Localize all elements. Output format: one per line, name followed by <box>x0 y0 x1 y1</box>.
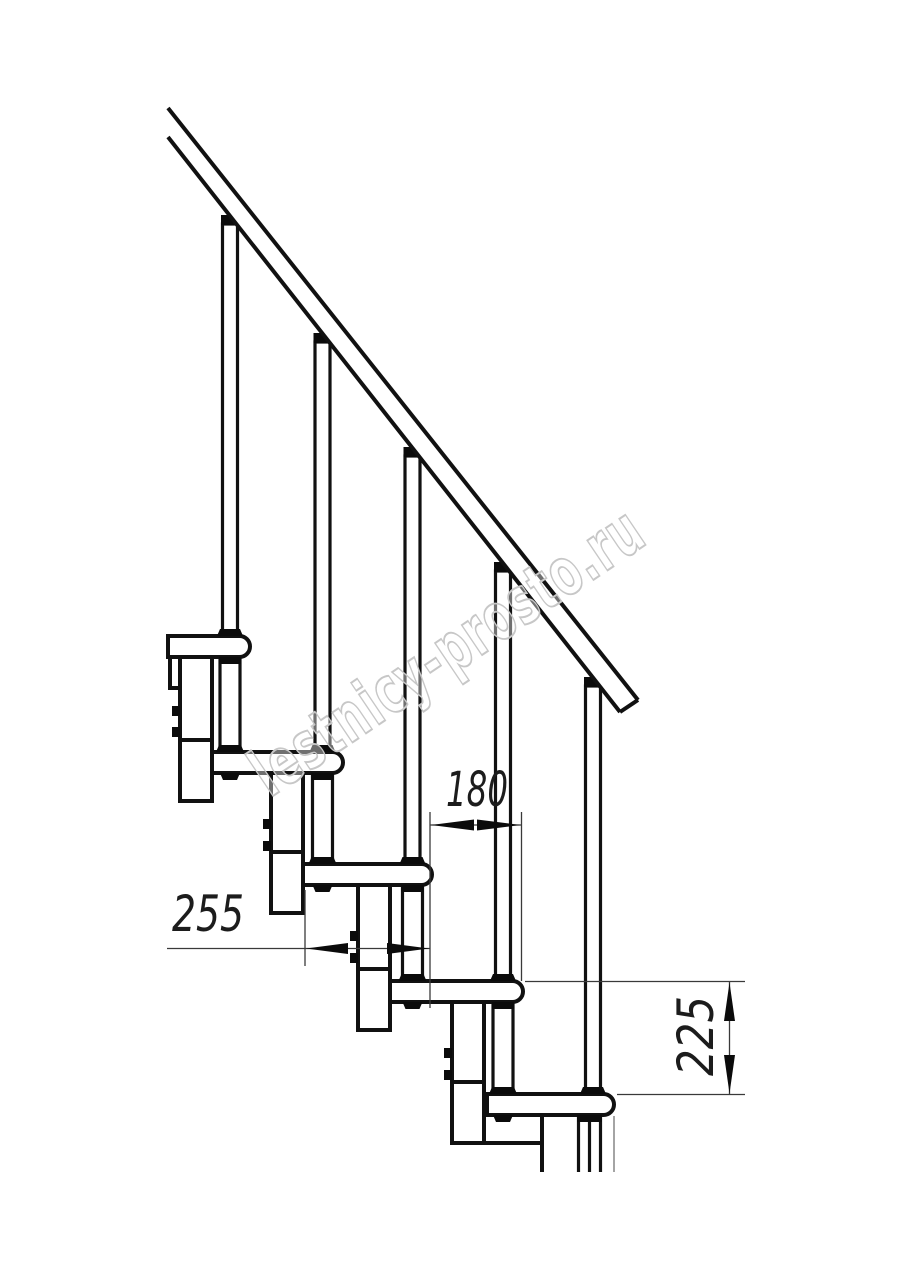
dimension-label-height: 225 <box>667 996 725 1076</box>
bolt <box>444 1070 452 1080</box>
bolt <box>172 727 180 737</box>
staircase-technical-drawing: 180 255 225 lestnicy-prosto.ru <box>0 0 914 1280</box>
bolt <box>263 819 271 829</box>
tread-4 <box>390 981 523 1002</box>
tread-5 <box>487 1094 614 1115</box>
riser-bracket <box>180 657 212 801</box>
baluster <box>223 224 238 636</box>
bolt <box>444 1048 452 1058</box>
tread-1 <box>168 636 250 657</box>
dimension-label-depth: 255 <box>172 885 244 943</box>
bolt <box>350 931 358 941</box>
support-column <box>403 885 423 981</box>
riser-bracket <box>358 885 390 1030</box>
riser-bracket <box>452 1002 484 1143</box>
dimension-height: 225 <box>525 982 745 1173</box>
bolt <box>263 841 271 851</box>
support-column <box>493 1002 513 1094</box>
dimension-label-run: 180 <box>446 762 508 818</box>
bolt <box>172 706 180 716</box>
tread-3 <box>303 864 432 885</box>
support-column <box>220 657 240 752</box>
support-column <box>313 773 333 864</box>
bolt <box>350 953 358 963</box>
baluster <box>586 686 601 1094</box>
drawing-page: 180 255 225 lestnicy-prosto.ru <box>0 0 914 1280</box>
